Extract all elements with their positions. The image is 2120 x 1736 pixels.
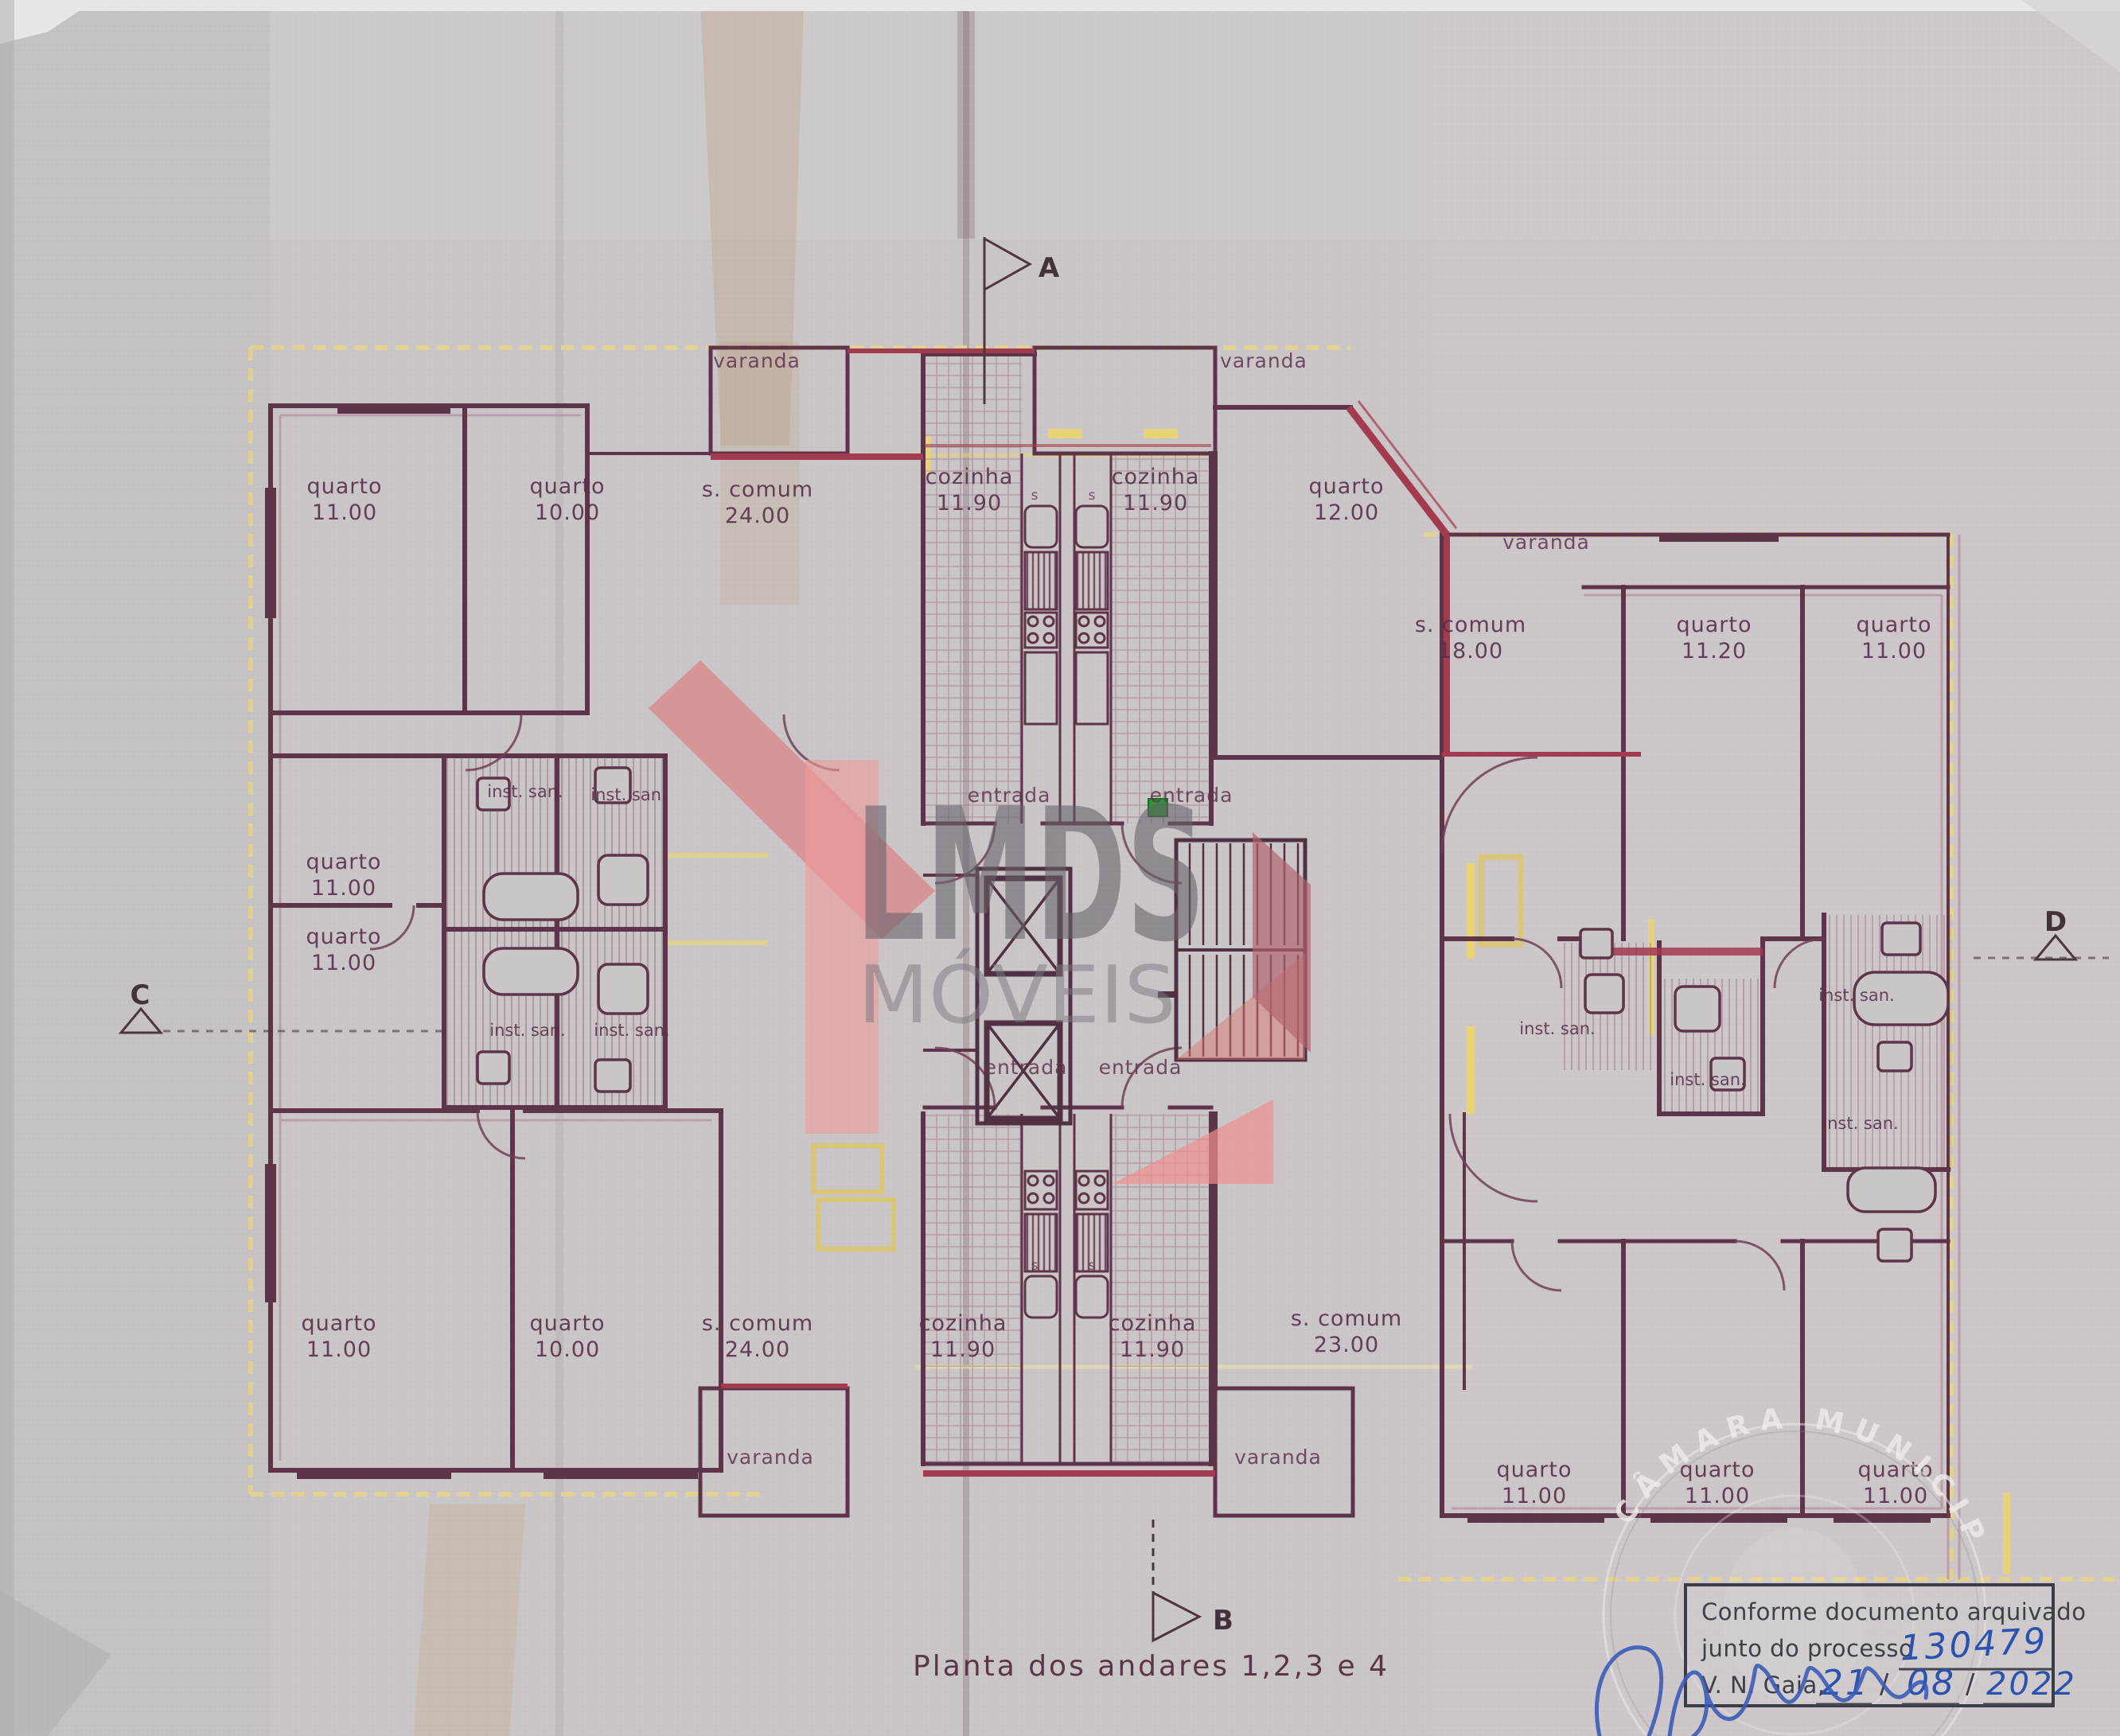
- room-label: inst. san.: [489, 1021, 565, 1040]
- room-label: inst. san.: [590, 785, 666, 804]
- toilet: [595, 1060, 630, 1092]
- room-label: s. comum: [1291, 1306, 1402, 1331]
- room-label: varanda: [1502, 531, 1590, 554]
- room-label: quarto: [1308, 474, 1384, 499]
- room-area: 11.00: [1502, 1484, 1567, 1508]
- room-label: inst. san.: [487, 782, 563, 801]
- section-marker-c: C: [131, 979, 150, 1011]
- washbasin: [598, 964, 648, 1014]
- fixture-tag: s: [1031, 1258, 1039, 1274]
- room-label: varanda: [727, 1446, 814, 1469]
- section-marker-d: D: [2044, 906, 2067, 938]
- room-label: quarto: [529, 1311, 605, 1336]
- room-area: 11.00: [311, 951, 376, 975]
- room-area: 11.00: [312, 500, 377, 525]
- room-label: entrada: [1099, 1056, 1183, 1079]
- room-area: 10.00: [535, 1337, 600, 1362]
- room-label: varanda: [1234, 1446, 1322, 1469]
- drawing-caption: Planta dos andares 1,2,3 e 4: [913, 1650, 1389, 1683]
- toilet: [1580, 929, 1612, 958]
- room-label: quarto: [306, 850, 381, 874]
- room-label: inst. san.: [594, 1021, 669, 1040]
- room-label: cozinha: [1112, 465, 1200, 489]
- stamp-date-day: 21: [1821, 1663, 1870, 1703]
- washbasin: [1675, 987, 1720, 1031]
- room-label: quarto: [306, 474, 382, 499]
- toilet: [1882, 923, 1920, 955]
- section-marker-a: A: [1039, 252, 1060, 284]
- room-area: 24.00: [725, 504, 790, 528]
- toilet: [477, 1052, 509, 1084]
- bottom-stain: [414, 1504, 525, 1736]
- room-area: 12.00: [1314, 500, 1379, 525]
- bathtub: [1848, 1168, 1935, 1212]
- room-area: 23.00: [1314, 1333, 1379, 1357]
- room-label: quarto: [301, 1311, 376, 1336]
- date-slash: /: [1966, 1668, 1975, 1700]
- counter: [1076, 552, 1108, 609]
- room-area: 18.00: [1438, 639, 1503, 664]
- room-label: entrada: [968, 784, 1051, 807]
- fixture-tag: s: [1089, 1258, 1096, 1274]
- room-label: varanda: [713, 349, 801, 372]
- fixture-tag: s: [1031, 488, 1039, 504]
- bathtub: [484, 874, 578, 920]
- stamp-date-year: 2022: [1986, 1666, 2077, 1703]
- room-label: cozinha: [926, 465, 1014, 489]
- section-marker-b: B: [1213, 1605, 1233, 1637]
- washbasin: [1585, 975, 1623, 1013]
- room-label: entrada: [1150, 784, 1233, 807]
- room-label: quarto: [529, 474, 605, 499]
- room-area: 11.90: [937, 491, 1002, 516]
- room-area: 11.20: [1682, 639, 1747, 664]
- bathtub: [484, 948, 578, 995]
- room-label: s. comum: [702, 1311, 813, 1336]
- toilet: [1878, 1229, 1912, 1261]
- room-label: varanda: [1220, 349, 1307, 372]
- stamp-process-number: 130479: [1899, 1621, 2048, 1669]
- room-label: inst. san.: [1822, 1114, 1898, 1133]
- room-area: 11.00: [311, 876, 376, 901]
- kitchen-floor: [925, 1114, 1022, 1464]
- counter: [1025, 1214, 1057, 1271]
- room-label: cozinha: [919, 1311, 1007, 1336]
- room-label: s. comum: [702, 477, 813, 502]
- room-area: 11.90: [930, 1337, 996, 1362]
- room-label: entrada: [984, 1056, 1068, 1079]
- room-area: 10.00: [535, 500, 600, 525]
- room-label: quarto: [1676, 613, 1752, 637]
- room-area: 11.00: [306, 1337, 372, 1362]
- kitchen-floor: [925, 356, 1022, 823]
- fixture-tag: s: [1089, 488, 1096, 504]
- room-label: quarto: [1496, 1458, 1572, 1482]
- scanned-floorplan-page: LMDS MÓVEIS A B C D varanda varanda quar…: [0, 0, 2120, 1736]
- room-label: quarto: [306, 924, 381, 949]
- room-area: 24.00: [725, 1337, 790, 1362]
- watermark-brand-sub: MÓVEIS: [858, 948, 1176, 1041]
- room-area: 11.90: [1123, 491, 1188, 516]
- room-label: inst. san.: [1818, 986, 1894, 1005]
- room-label: inst. san.: [1519, 1019, 1595, 1038]
- room-area: 11.00: [1861, 639, 1927, 664]
- room-area: 11.00: [1685, 1484, 1750, 1508]
- toilet: [1878, 1042, 1912, 1071]
- room-area: 11.00: [1863, 1484, 1928, 1508]
- floorplan-drawing: LMDS MÓVEIS A B C D varanda varanda quar…: [0, 0, 2120, 1736]
- washbasin: [598, 855, 648, 905]
- counter: [1025, 552, 1057, 609]
- room-label: cozinha: [1109, 1311, 1197, 1336]
- stamp-line2-prefix: junto do processo: [1701, 1635, 1913, 1662]
- room-label: quarto: [1856, 613, 1931, 637]
- room-area: 11.90: [1120, 1337, 1185, 1362]
- room-label: inst. san.: [1670, 1070, 1745, 1089]
- room-label: s. comum: [1415, 613, 1526, 637]
